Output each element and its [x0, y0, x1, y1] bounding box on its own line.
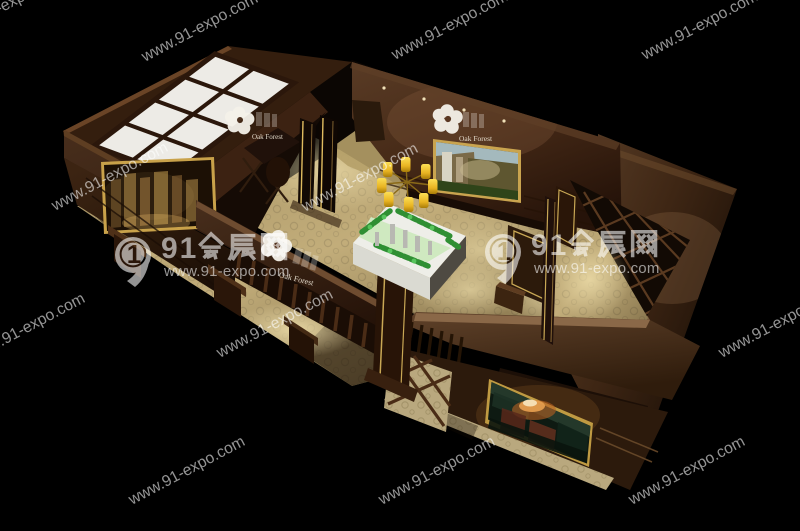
- svg-text:91: 91: [531, 229, 568, 262]
- svg-text:Oak Forest: Oak Forest: [252, 133, 283, 141]
- svg-text:Oak Forest: Oak Forest: [459, 134, 493, 143]
- svg-text:www.91-expo.com: www.91-expo.com: [533, 260, 660, 277]
- svg-text:www.91-expo.com: www.91-expo.com: [163, 263, 290, 280]
- svg-text:91: 91: [161, 232, 198, 265]
